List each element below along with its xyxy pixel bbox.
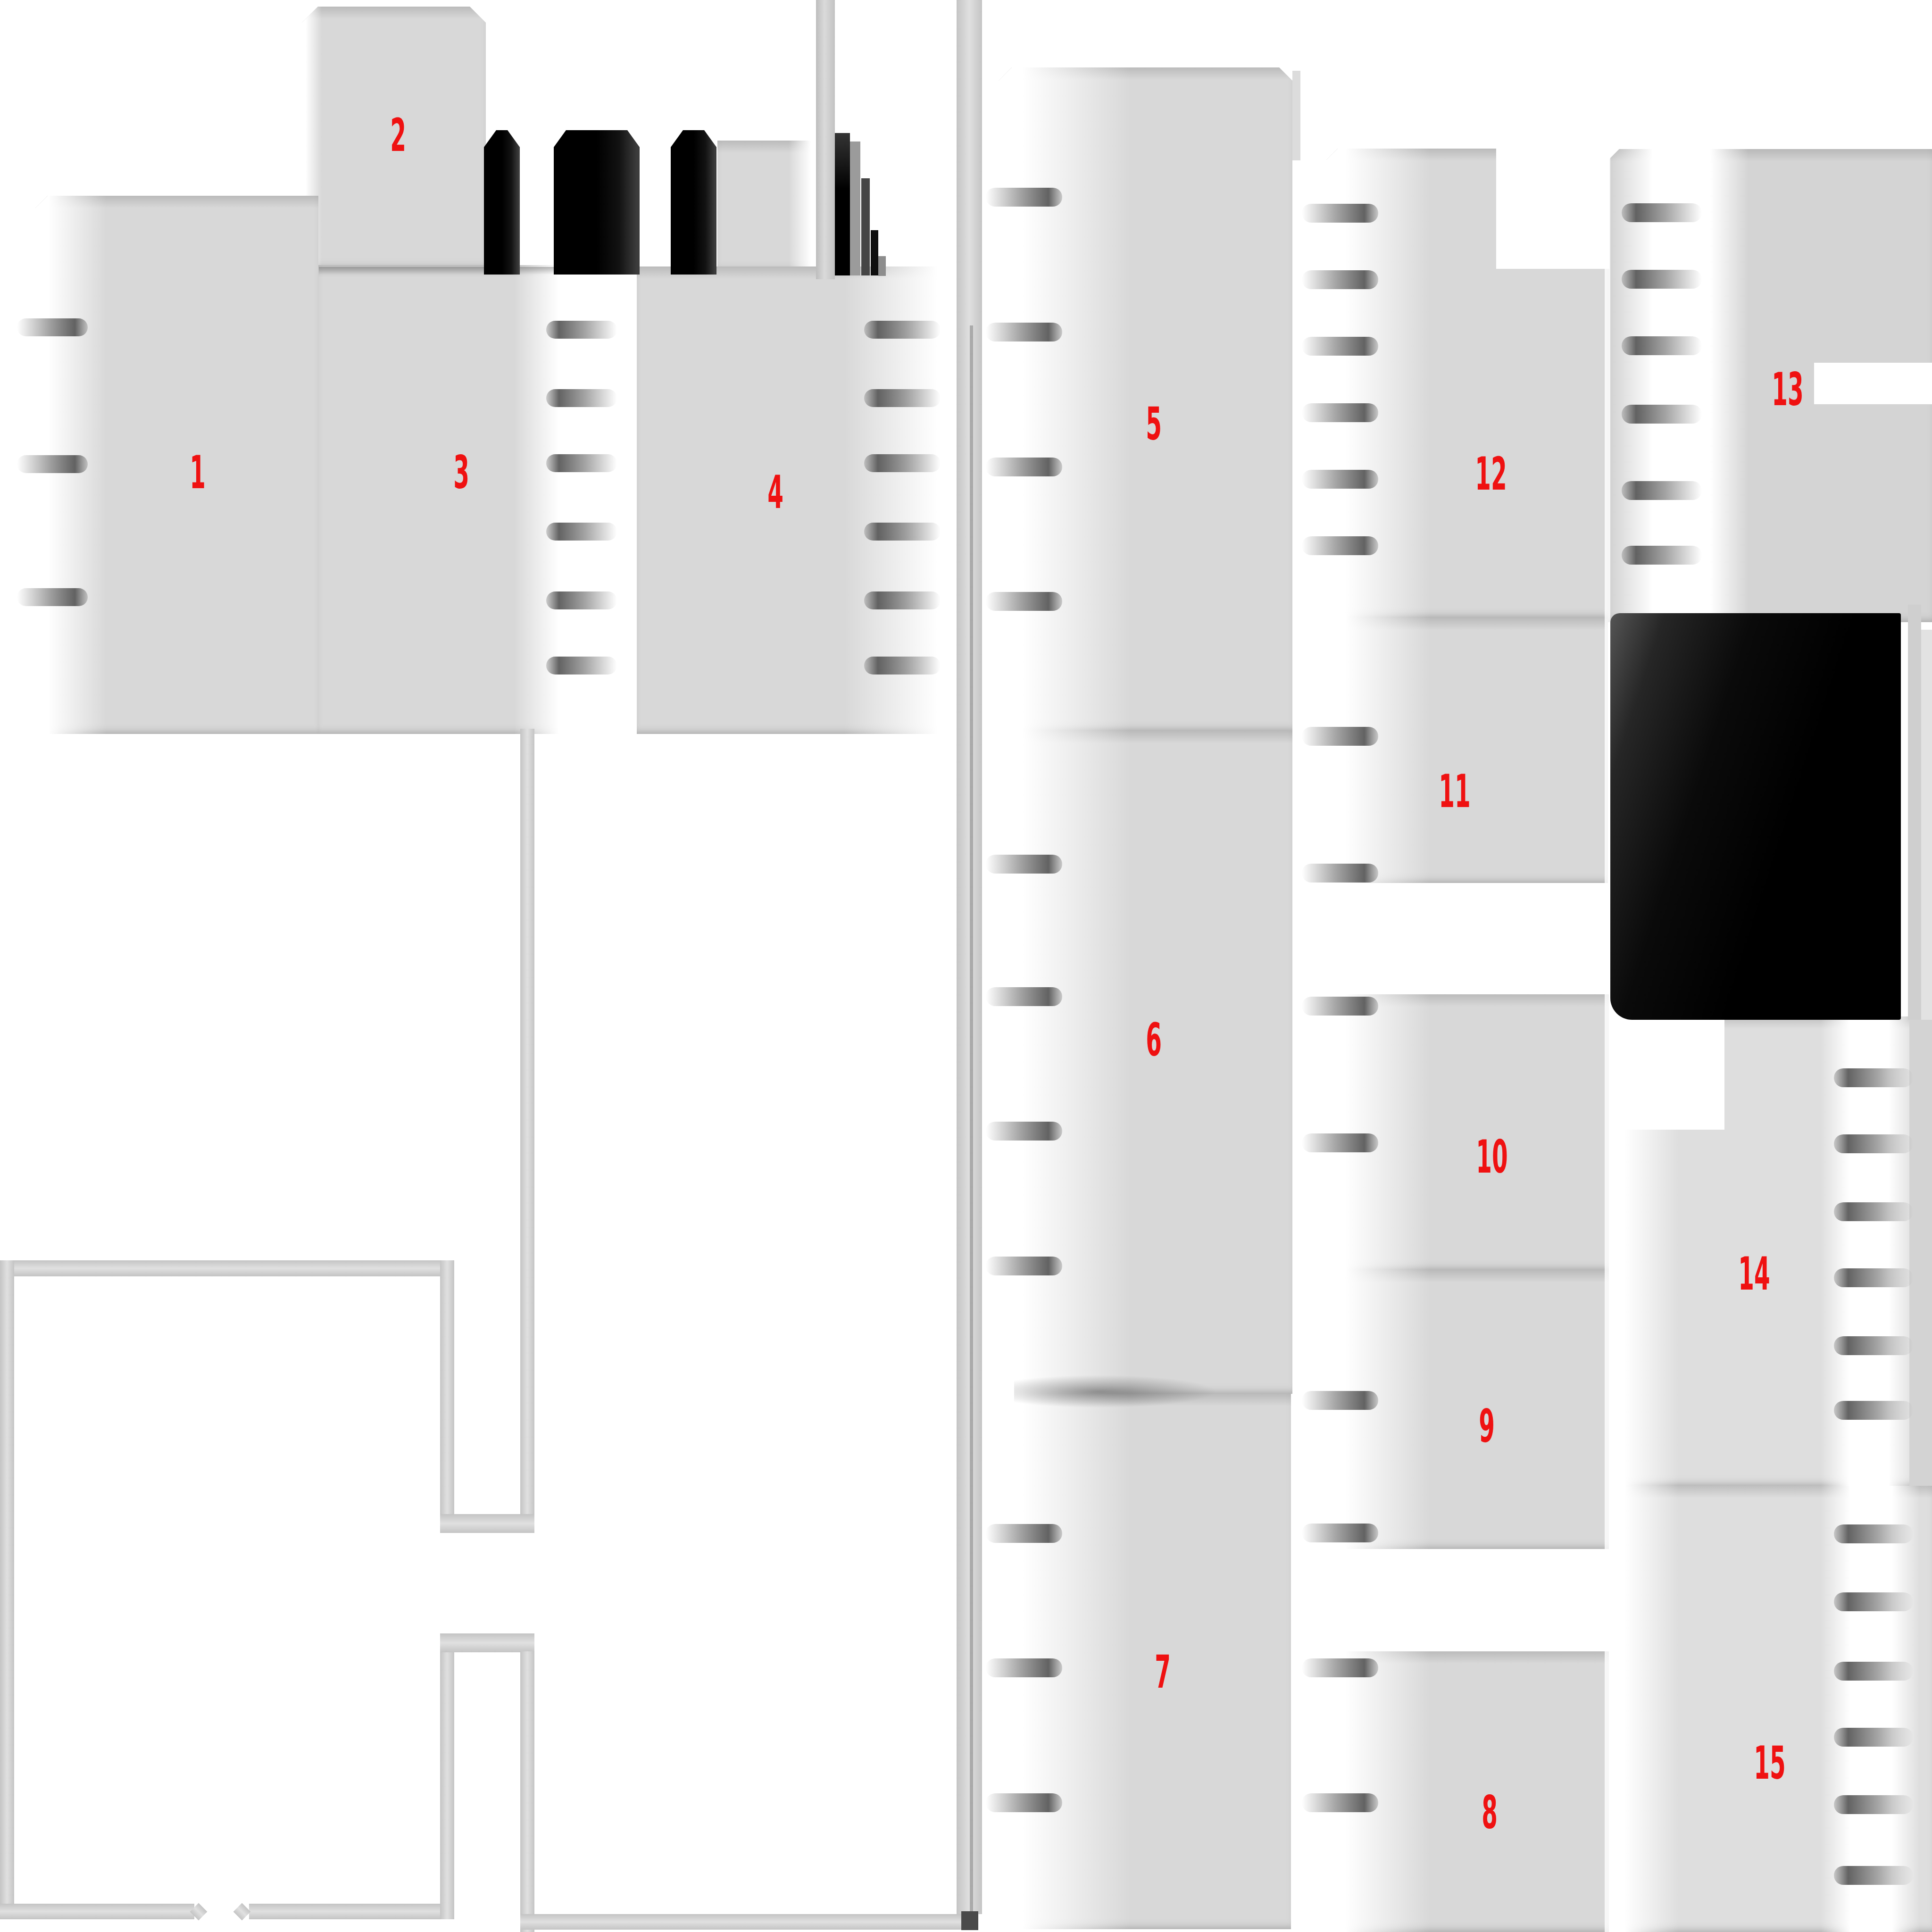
region-label-15: 15 <box>1754 1740 1786 1786</box>
wall-end-cap <box>961 1911 978 1930</box>
tick-mark <box>1834 1336 1913 1355</box>
wall <box>440 1633 534 1652</box>
wall <box>520 1651 534 1932</box>
tick-mark <box>986 458 1062 476</box>
tick-mark <box>986 987 1062 1006</box>
tick-mark <box>546 657 617 675</box>
wall <box>520 729 534 1533</box>
tick-mark <box>986 1793 1062 1812</box>
tick-mark <box>1834 1268 1913 1287</box>
region-5-edge-bump <box>1292 71 1300 160</box>
tick-mark <box>1302 1658 1378 1677</box>
region-label-5: 5 <box>1146 401 1162 447</box>
thin-strip <box>816 0 835 279</box>
tick-mark <box>1834 1592 1913 1611</box>
tick-mark <box>1834 1728 1913 1747</box>
wall <box>249 1904 454 1919</box>
wall <box>0 1260 14 1919</box>
region-11-block <box>1326 618 1608 883</box>
tick-mark <box>1302 470 1378 489</box>
region-4-upper-block <box>717 141 815 271</box>
black-column <box>484 130 520 275</box>
tick-mark <box>17 588 88 606</box>
wall <box>0 1260 454 1276</box>
tick-mark <box>1302 536 1378 555</box>
tick-mark <box>1834 1524 1913 1543</box>
region-label-3: 3 <box>453 450 469 495</box>
region-13-right-notch <box>1814 363 1932 404</box>
tick-mark <box>546 591 617 609</box>
tick-mark <box>1622 405 1702 424</box>
tick-mark <box>17 318 88 336</box>
region-label-11: 11 <box>1439 768 1471 814</box>
wall <box>440 1260 454 1532</box>
tick-band <box>1821 1486 1920 1932</box>
tick-mark <box>1302 864 1378 883</box>
region-label-8: 8 <box>1482 1790 1498 1835</box>
region-label-7: 7 <box>1155 1649 1171 1695</box>
region-label-1: 1 <box>190 450 206 495</box>
tick-mark <box>1622 546 1702 565</box>
boundary-smudge <box>1014 1375 1217 1408</box>
tick-mark <box>1302 997 1378 1016</box>
tick-mark <box>1302 1524 1378 1542</box>
edge-fade <box>1326 618 1430 883</box>
tick-mark <box>1302 727 1378 746</box>
tall-wall-strip <box>957 0 982 1914</box>
wall <box>440 1633 454 1919</box>
tick-mark <box>1834 1795 1913 1814</box>
wall <box>440 1514 534 1533</box>
tick-mark <box>1834 1401 1913 1420</box>
white-cutout <box>1374 883 1604 994</box>
tick-mark <box>17 455 88 473</box>
tick-mark <box>864 321 941 339</box>
tick-mark <box>1302 270 1378 289</box>
region-label-9: 9 <box>1479 1403 1495 1449</box>
tick-mark <box>546 454 617 472</box>
region-label-14: 14 <box>1738 1251 1770 1297</box>
region-label-10: 10 <box>1476 1134 1508 1180</box>
tick-mark <box>1622 270 1702 289</box>
tick-mark <box>986 1257 1062 1275</box>
black-column <box>554 130 640 275</box>
thin-strip <box>850 142 860 275</box>
tick-mark <box>986 1524 1062 1543</box>
tick-mark <box>864 454 941 472</box>
edge-fade <box>1613 1486 1679 1932</box>
region-12-top-notch <box>1496 148 1609 269</box>
region-label-4: 4 <box>767 469 783 515</box>
tick-mark <box>864 389 941 407</box>
wall-inner-line <box>970 325 973 1914</box>
tick-mark <box>1302 337 1378 356</box>
strip-right-of-black <box>1908 605 1921 1020</box>
thin-strip <box>835 133 850 275</box>
tick-mark <box>864 657 941 675</box>
tick-mark <box>1302 403 1378 422</box>
tick-mark <box>986 1122 1062 1141</box>
tick-mark <box>1622 203 1702 222</box>
tick-mark <box>1302 204 1378 223</box>
tick-mark <box>1622 481 1702 500</box>
thin-strip <box>861 178 870 275</box>
large-black-region <box>1610 613 1901 1020</box>
wall-door-mark <box>233 1903 251 1921</box>
tick-mark <box>546 523 617 541</box>
edge-fade <box>999 731 1131 1394</box>
thin-strip <box>871 230 878 275</box>
region-10-block <box>1326 994 1609 1270</box>
edge-fade <box>999 67 1131 731</box>
tick-mark <box>986 188 1062 207</box>
region-15-block <box>1613 1486 1932 1932</box>
region-3-block <box>318 265 566 734</box>
tick-mark <box>1834 1068 1913 1087</box>
tick-mark <box>986 323 1062 341</box>
region-label-6: 6 <box>1146 1017 1162 1063</box>
tick-mark <box>986 855 1062 874</box>
region-label-13: 13 <box>1772 366 1804 412</box>
region-label-2: 2 <box>390 112 406 158</box>
edge-fade <box>1326 1651 1430 1932</box>
tick-mark <box>1622 336 1702 355</box>
far-right-strip <box>1909 1016 1932 1486</box>
tick-mark <box>546 389 617 407</box>
white-cutout <box>1616 1020 1724 1130</box>
strip-right-of-black <box>1921 630 1932 1020</box>
tick-mark <box>1302 1793 1378 1812</box>
depth-map-canvas: 1 2 3 4 5 6 7 8 9 10 11 12 13 14 15 <box>0 0 1932 1932</box>
region-label-12: 12 <box>1475 451 1507 497</box>
white-cutout <box>1375 1549 1605 1651</box>
tick-mark <box>1834 1202 1913 1221</box>
region-8-block <box>1326 1651 1609 1932</box>
wall <box>520 1914 972 1930</box>
black-column <box>671 130 716 275</box>
tick-mark <box>986 592 1062 611</box>
tick-mark <box>1302 1391 1378 1410</box>
edge-fade <box>1326 994 1430 1270</box>
wall <box>0 1904 194 1919</box>
tick-mark <box>864 591 941 609</box>
edge-fade <box>789 141 815 271</box>
tick-mark <box>1302 1133 1378 1152</box>
thin-strip <box>878 256 886 276</box>
tick-mark <box>864 523 941 541</box>
tick-mark <box>546 321 617 339</box>
tick-mark <box>1834 1866 1913 1885</box>
column-seam <box>1605 149 1610 1932</box>
tick-mark <box>1834 1134 1913 1153</box>
tick-mark <box>986 1658 1062 1677</box>
tick-mark <box>1834 1662 1913 1681</box>
